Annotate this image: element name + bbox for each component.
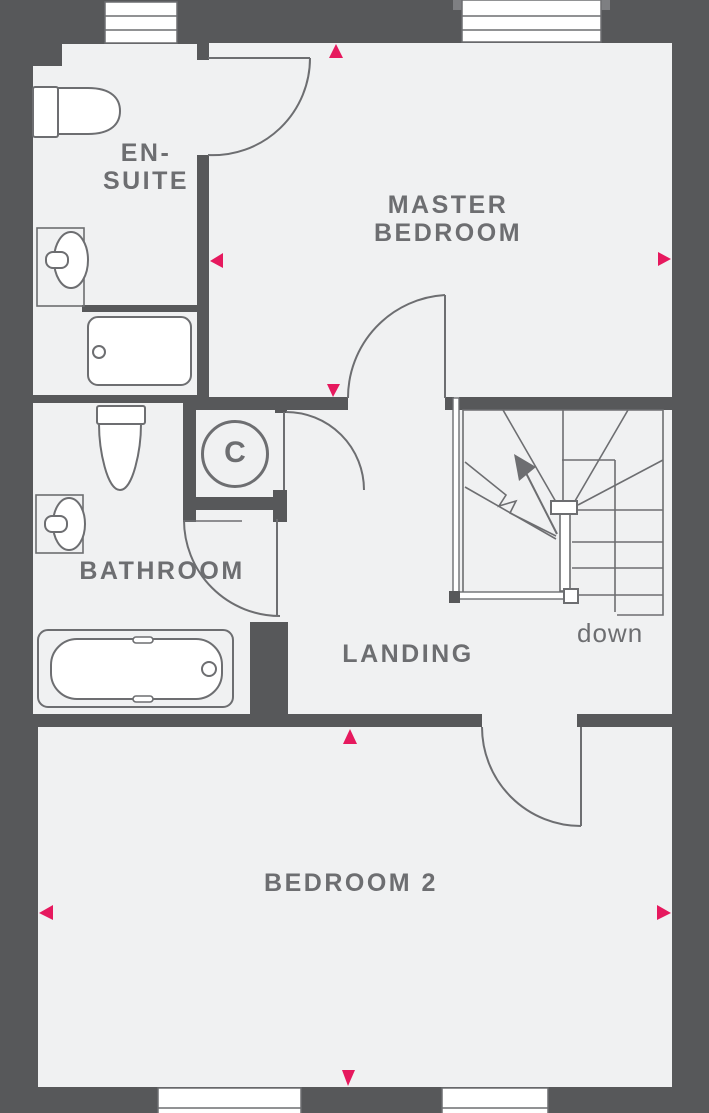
- room-label-bathroom: BATHROOM: [42, 557, 282, 585]
- stairs-down-label: down: [577, 619, 677, 647]
- room-label-line: BEDROOM: [374, 219, 522, 247]
- room-en-suite: [62, 44, 197, 66]
- stair-rail-left: [453, 398, 459, 597]
- floor-plan: EN- SUITE MASTER BEDROOM BATHROOM LANDIN…: [0, 0, 709, 1113]
- stair-stringer: [560, 514, 570, 591]
- en-suite-window: [105, 2, 177, 43]
- master-door-gap: [348, 398, 445, 410]
- stair-newel-post: [564, 589, 578, 603]
- room-label-line: MASTER: [388, 191, 509, 219]
- bath-icon: [38, 630, 233, 707]
- stair-newel-post: [551, 501, 577, 514]
- room-label-line: EN-: [121, 139, 172, 167]
- stair-rail-cap: [449, 591, 460, 603]
- cupboard-symbol: C: [201, 420, 269, 488]
- room-label-en-suite: EN- SUITE: [46, 139, 246, 195]
- room-bedroom-2: [38, 727, 672, 1087]
- bedroom2-door-gap: [482, 714, 577, 727]
- room-label-bedroom-2: BEDROOM 2: [231, 869, 471, 897]
- stair-rail-bottom: [453, 592, 575, 599]
- toilet-icon: [33, 87, 120, 137]
- shower-icon: [88, 317, 191, 385]
- bedroom2-window-right: [442, 1088, 548, 1113]
- room-label-master-bedroom: MASTER BEDROOM: [338, 191, 558, 247]
- bedroom2-window-left: [158, 1088, 301, 1113]
- cupboard-letter: C: [224, 436, 246, 469]
- room-label-line: SUITE: [103, 167, 189, 195]
- room-label-landing: LANDING: [288, 640, 528, 668]
- master-bedroom-window: [453, 0, 610, 42]
